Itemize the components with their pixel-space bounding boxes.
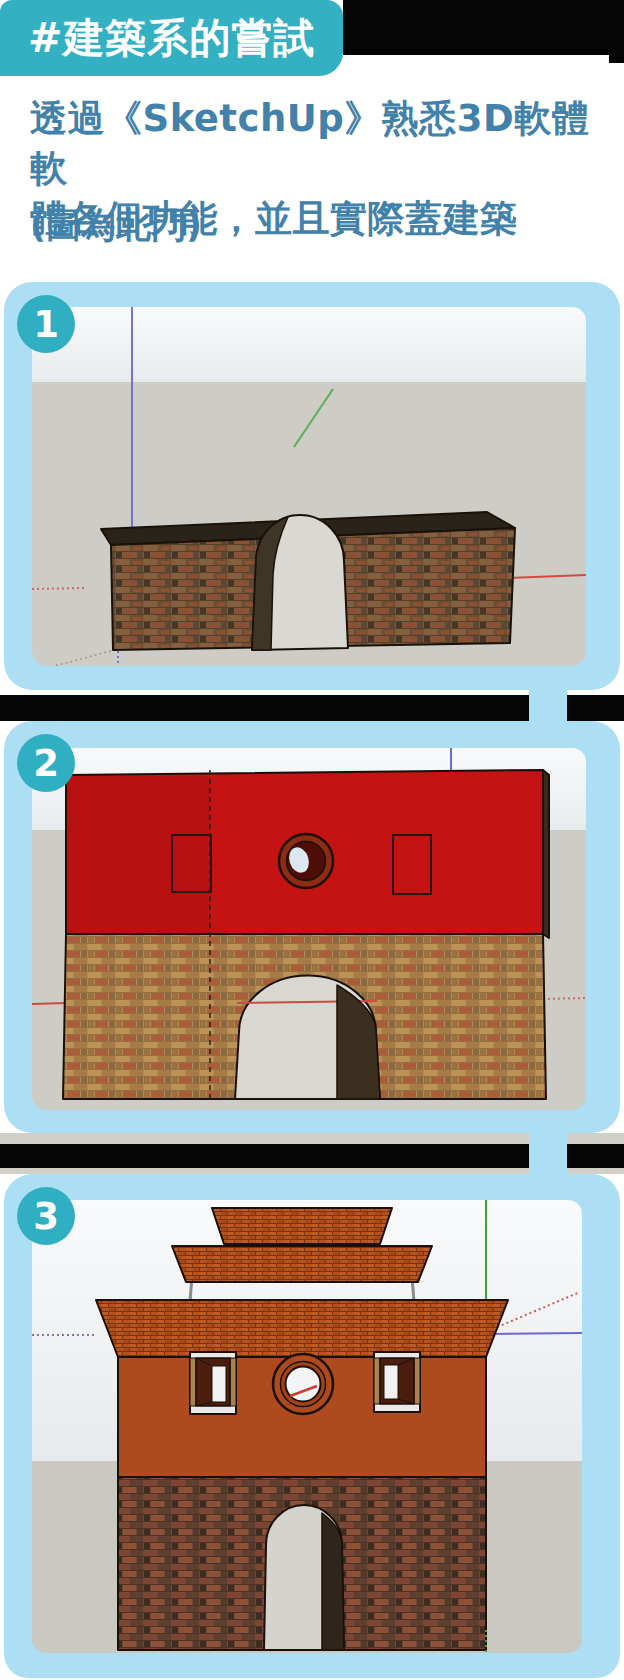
separator-bar-1-right [567,695,624,721]
top-right-black-bar [343,0,624,55]
step-1-number: 1 [33,303,59,346]
brick-box-model [101,512,515,650]
title-badge: #建築系的嘗試 [0,0,343,76]
headline-note: (圖為北門) [30,202,202,249]
step-1-badge: 1 [17,295,75,353]
separator-bar-1-left [0,695,529,721]
panel-connector-2 [529,1128,567,1178]
step-3-number: 3 [33,1195,59,1238]
infographic-page: #建築系的嘗試 透過《SketchUp》熟悉3D軟體軟 體各個功能，並且實際蓋建… [0,0,624,1680]
title-badge-label: #建築系的嘗試 [28,11,315,66]
top-right-black-notch [609,55,624,63]
step-2-number: 2 [33,742,59,785]
sketchup-screenshot-3 [32,1200,582,1653]
left-window [190,1352,236,1414]
headline-line-1: 透過《SketchUp》熟悉3D軟體軟 [30,94,624,194]
sketchup-screenshot-2 [32,748,586,1110]
step-3-badge: 3 [17,1187,75,1245]
right-window [374,1352,420,1412]
separator-bar-2-left [0,1144,529,1168]
step-2-badge: 2 [17,734,75,792]
panel-connector-1 [529,685,567,725]
gate-model-stage2 [63,770,549,1099]
sketchup-screenshot-1 [32,307,586,666]
separator-bar-2-right [567,1144,624,1168]
